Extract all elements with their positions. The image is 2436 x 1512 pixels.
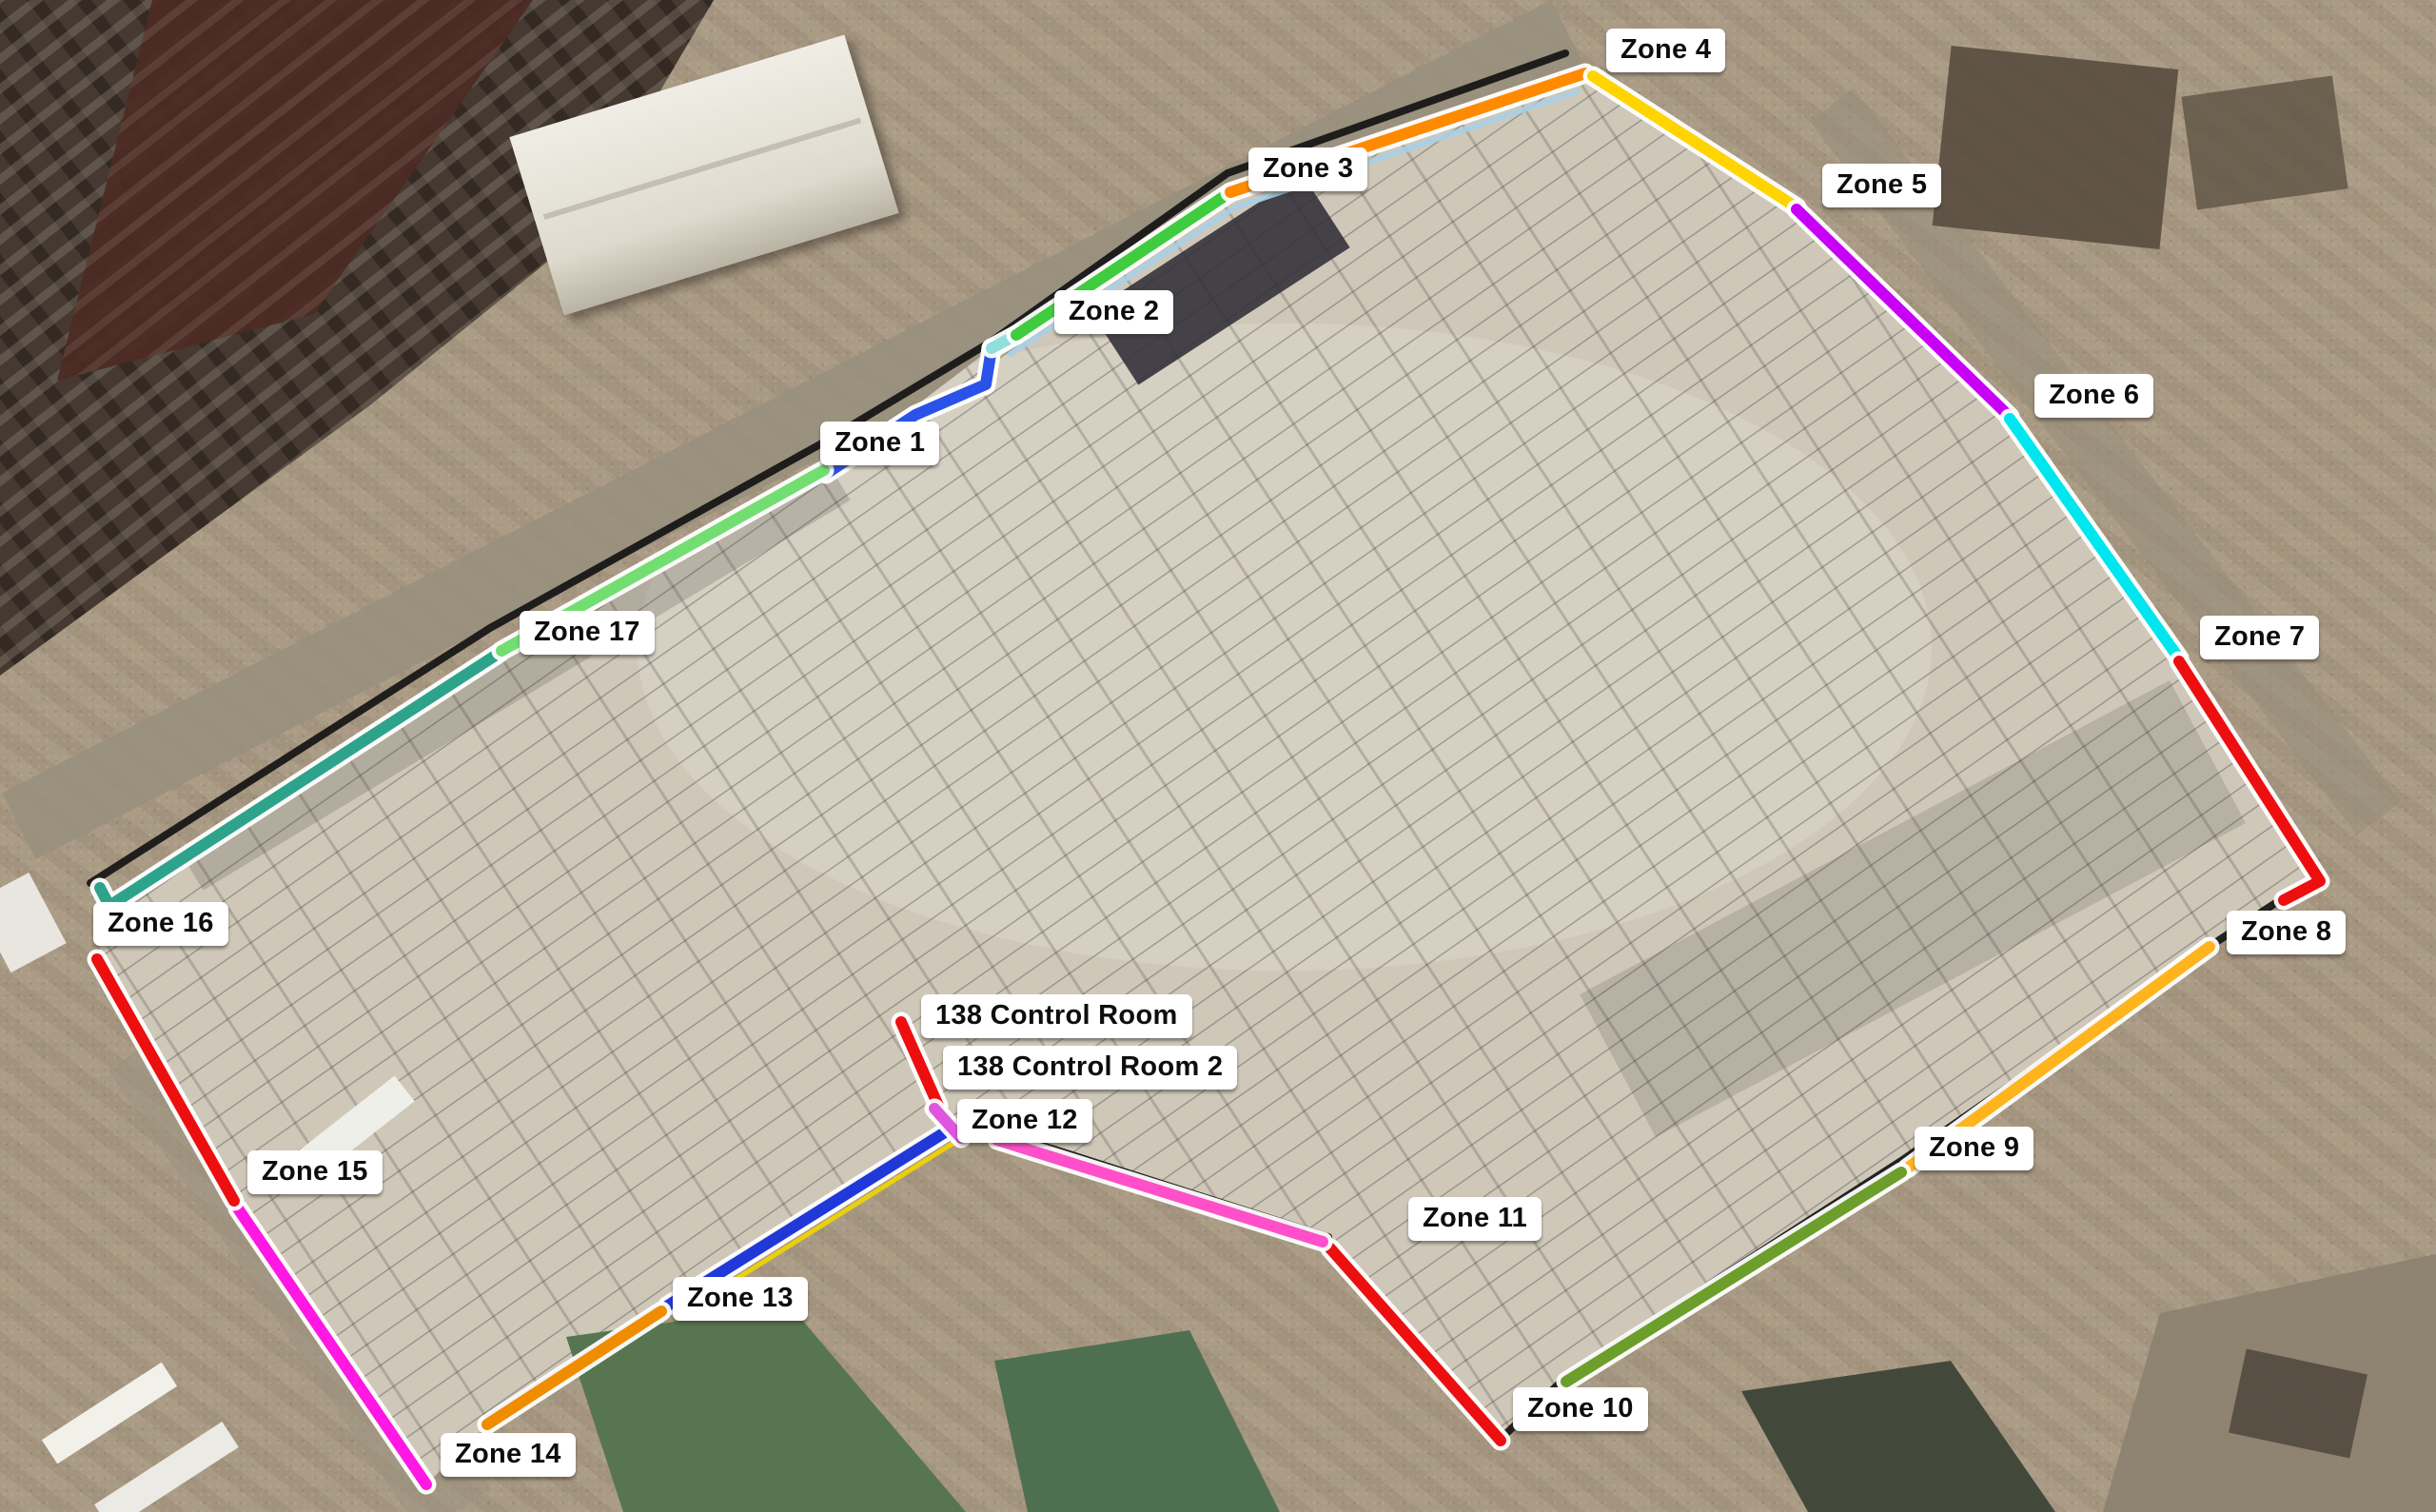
label-138-control-room[interactable]: 138 Control Room bbox=[921, 994, 1192, 1038]
label-zone-1[interactable]: Zone 1 bbox=[820, 422, 939, 465]
label-zone-15[interactable]: Zone 15 bbox=[247, 1150, 383, 1194]
substation-map: Zone 1Zone 2Zone 3Zone 4Zone 5Zone 6Zone… bbox=[0, 0, 2436, 1512]
label-zone-13[interactable]: Zone 13 bbox=[673, 1277, 808, 1321]
label-zone-14[interactable]: Zone 14 bbox=[441, 1433, 576, 1477]
label-zone-12[interactable]: Zone 12 bbox=[957, 1099, 1092, 1143]
label-zone-11[interactable]: Zone 11 bbox=[1408, 1197, 1542, 1241]
label-138-control-room-2[interactable]: 138 Control Room 2 bbox=[943, 1046, 1237, 1090]
label-zone-16[interactable]: Zone 16 bbox=[93, 902, 228, 946]
label-zone-4[interactable]: Zone 4 bbox=[1606, 29, 1725, 72]
label-zone-17[interactable]: Zone 17 bbox=[520, 611, 655, 655]
label-zone-9[interactable]: Zone 9 bbox=[1915, 1127, 2033, 1170]
label-zone-5[interactable]: Zone 5 bbox=[1822, 164, 1941, 207]
label-zone-8[interactable]: Zone 8 bbox=[2227, 911, 2346, 954]
label-zone-3[interactable]: Zone 3 bbox=[1248, 147, 1367, 191]
label-zone-7[interactable]: Zone 7 bbox=[2200, 616, 2319, 659]
zone-labels: Zone 1Zone 2Zone 3Zone 4Zone 5Zone 6Zone… bbox=[0, 0, 2436, 1512]
label-zone-10[interactable]: Zone 10 bbox=[1513, 1387, 1648, 1431]
label-zone-6[interactable]: Zone 6 bbox=[2034, 374, 2153, 418]
label-zone-2[interactable]: Zone 2 bbox=[1054, 290, 1173, 334]
